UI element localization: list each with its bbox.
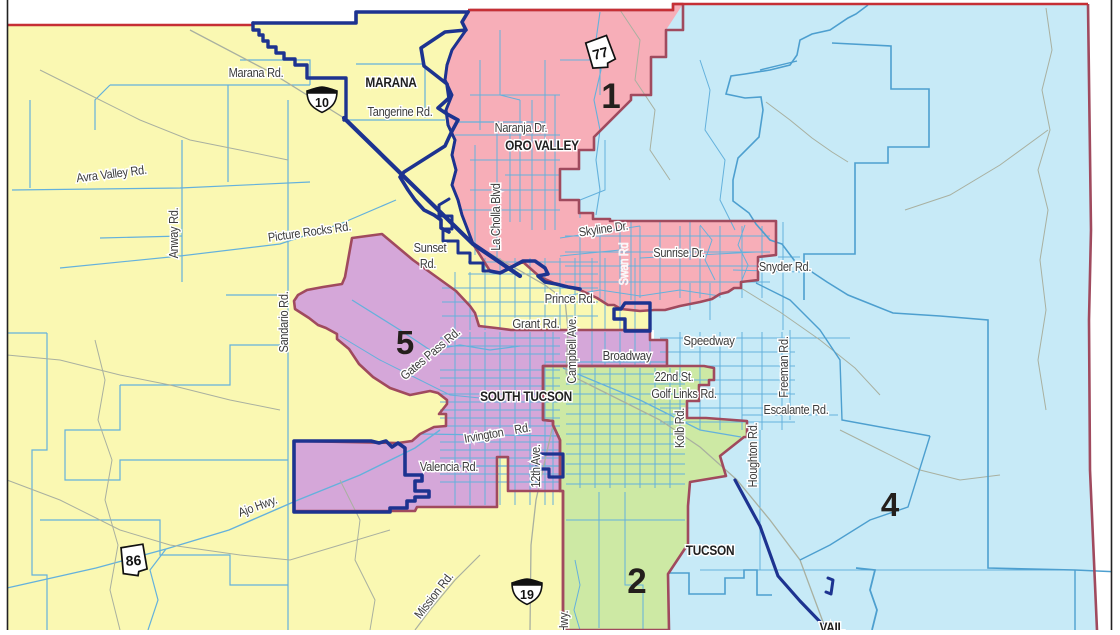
svg-text:86: 86 [125,552,142,569]
svg-text:VAIL: VAIL [819,619,845,630]
svg-text:10: 10 [315,96,329,110]
svg-text:Rd.: Rd. [420,257,436,271]
svg-text:Swan Rd: Swan Rd [617,243,631,286]
svg-text:Anway Rd.: Anway Rd. [167,208,181,259]
svg-text:5: 5 [396,324,414,361]
svg-text:SOUTH TUCSON: SOUTH TUCSON [480,388,572,404]
svg-text:12th Ave.: 12th Ave. [529,444,543,487]
svg-text:22nd St.: 22nd St. [655,370,694,384]
svg-text:Grant Rd.: Grant Rd. [512,316,559,331]
svg-text:MARANA: MARANA [365,74,416,90]
svg-text:Snyder Rd.: Snyder Rd. [759,260,811,274]
svg-text:Campbell Ave.: Campbell Ave. [565,316,579,383]
svg-text:Freeman Rd.: Freeman Rd. [777,336,791,397]
svg-text:Naranja Dr.: Naranja Dr. [495,121,548,135]
svg-text:19: 19 [520,588,534,602]
svg-text:1: 1 [601,77,620,116]
svg-text:2: 2 [627,562,646,601]
svg-text:Sunrise Dr.: Sunrise Dr. [653,246,704,260]
svg-text:4: 4 [881,486,900,523]
svg-text:Prince Rd.: Prince Rd. [545,291,596,306]
svg-text:La Cholla Blvd: La Cholla Blvd [489,183,503,250]
svg-text:Tangerine Rd.: Tangerine Rd. [367,105,432,119]
svg-text:Sandario Rd.: Sandario Rd. [277,291,291,352]
svg-text:Valencia Rd.: Valencia Rd. [420,460,478,474]
svg-text:Broadway: Broadway [603,348,653,363]
svg-text:Golf Links Rd.: Golf Links Rd. [651,387,716,401]
svg-text:Houghton Rd.: Houghton Rd. [746,423,760,488]
svg-text:ORO VALLEY: ORO VALLEY [505,137,579,153]
svg-text:Kolb Rd.: Kolb Rd. [673,408,687,448]
svg-text:Sunset: Sunset [414,241,448,255]
svg-text:Marana Rd.: Marana Rd. [229,66,284,80]
svg-text:Speedway: Speedway [683,333,735,348]
svg-text:Hwy.: Hwy. [557,611,571,630]
svg-text:Escalante Rd.: Escalante Rd. [763,403,828,417]
svg-text:TUCSON: TUCSON [686,542,735,558]
